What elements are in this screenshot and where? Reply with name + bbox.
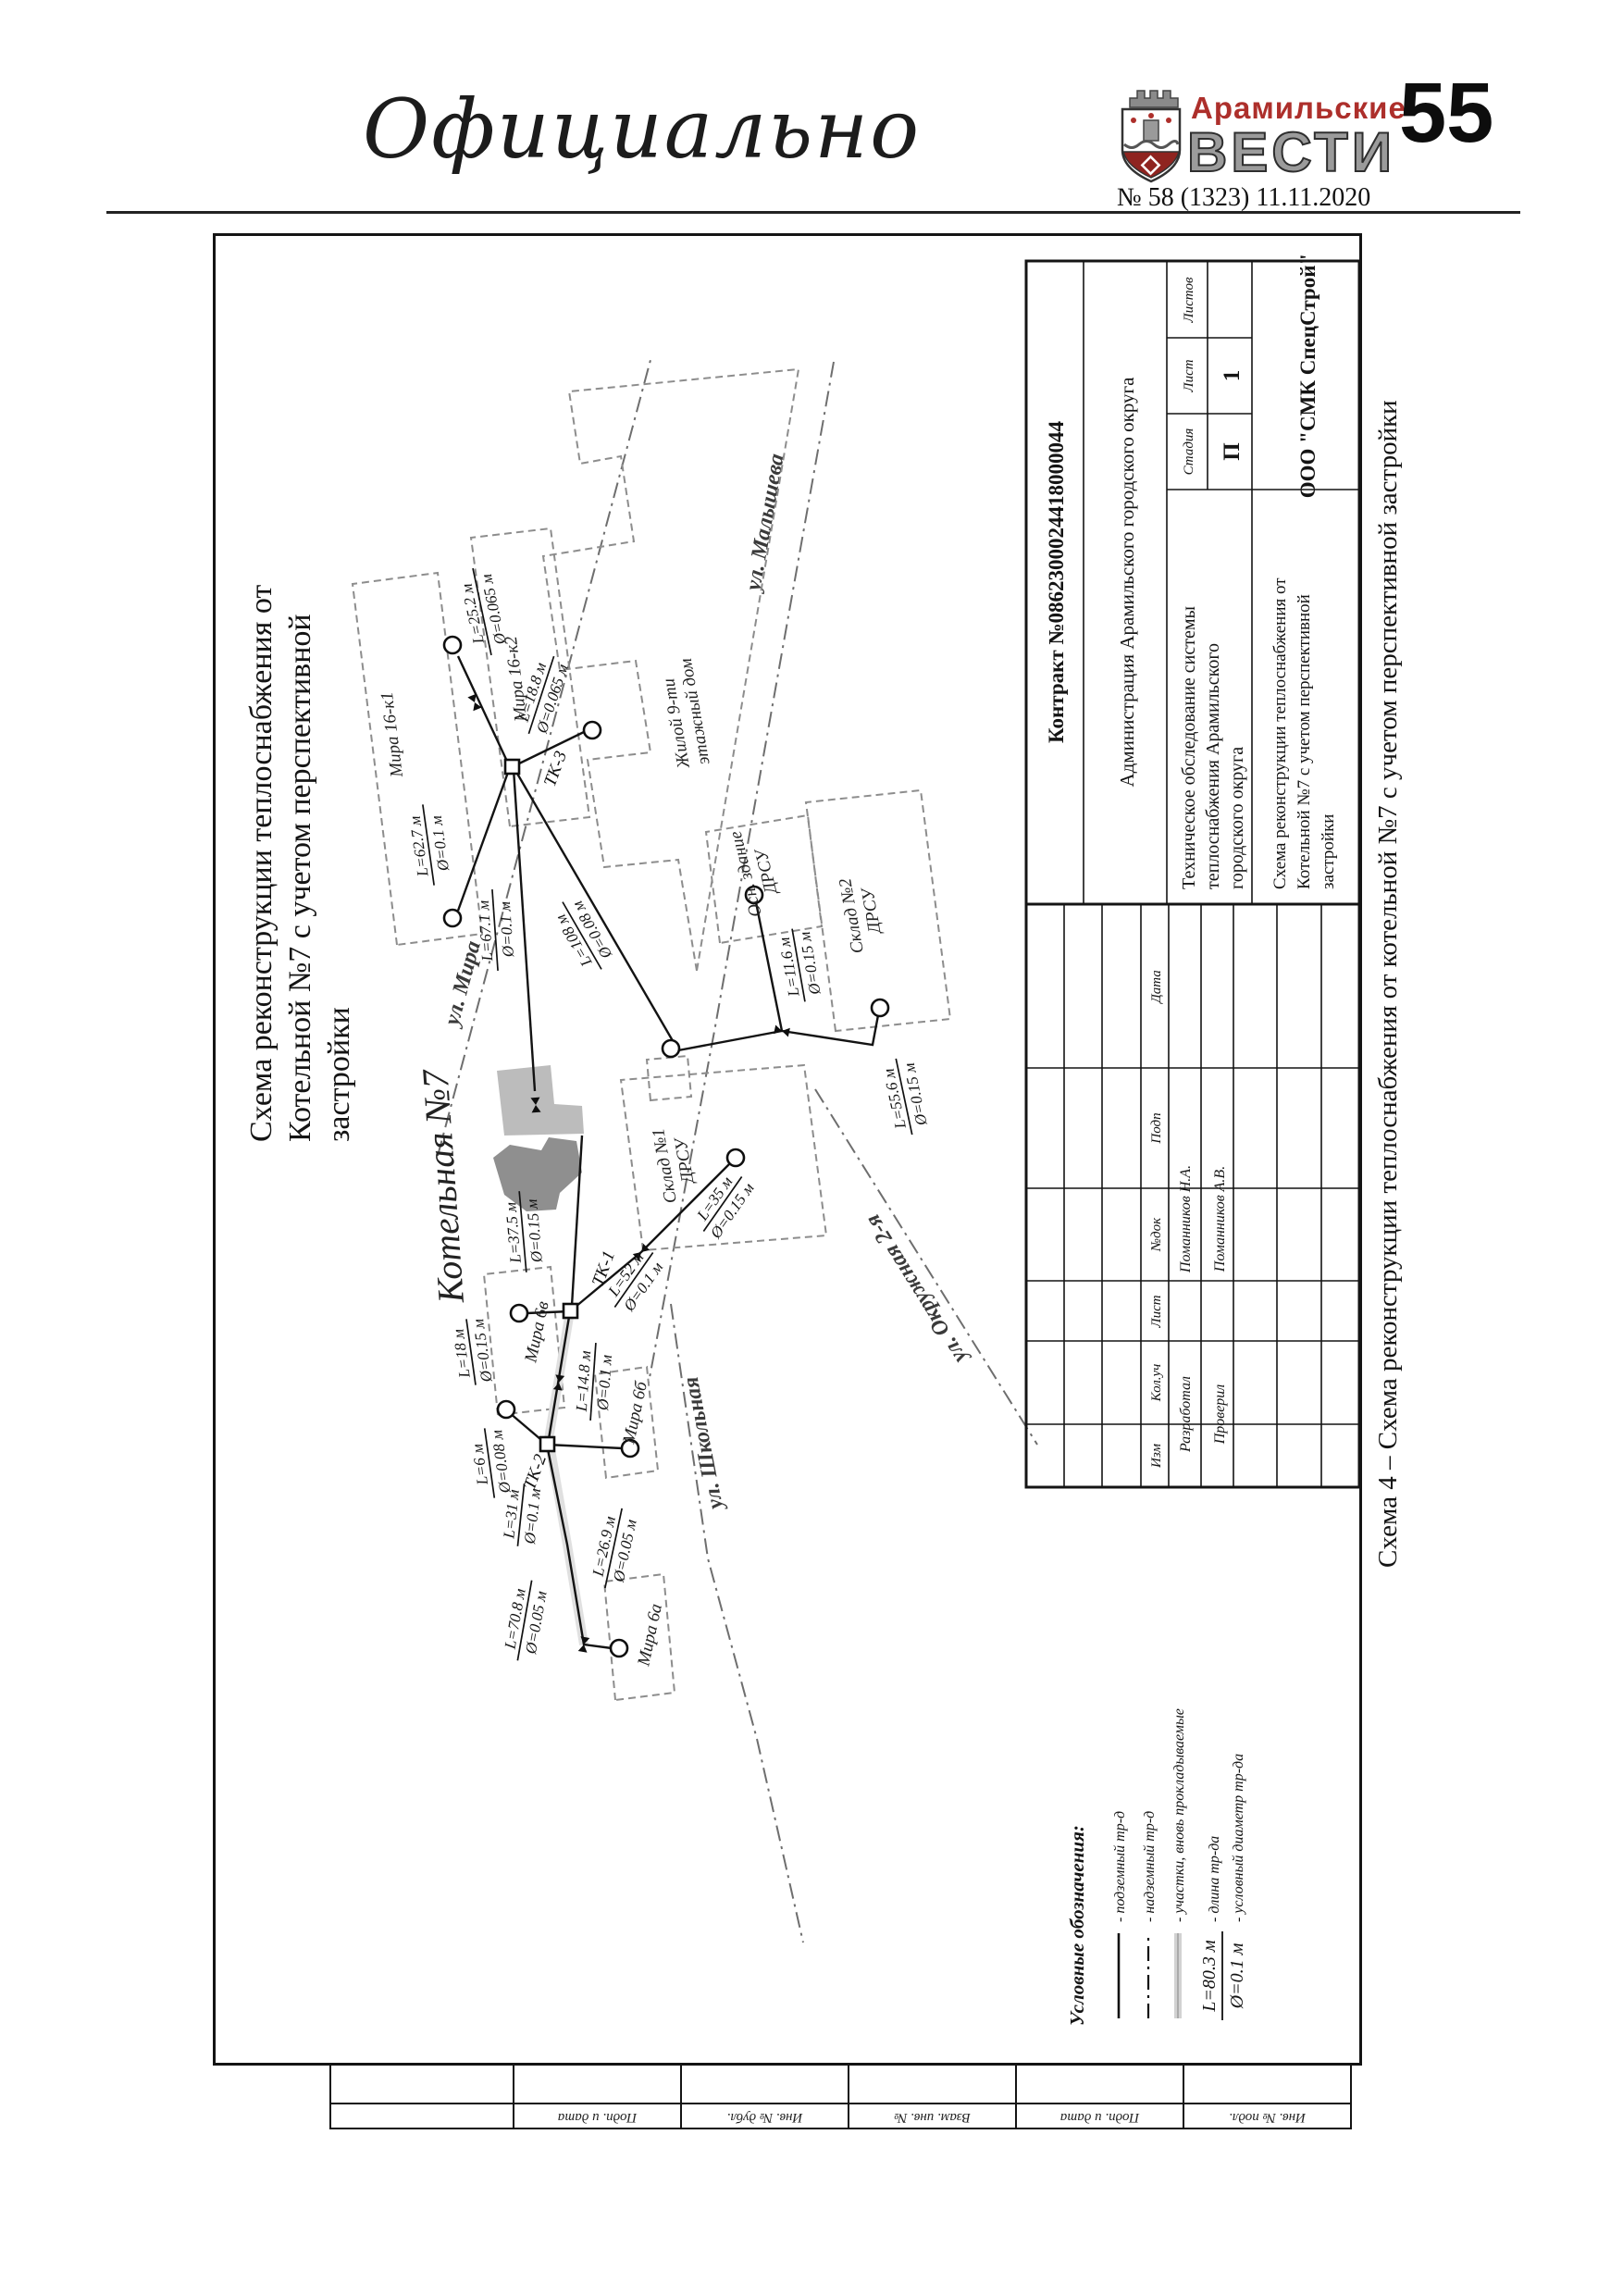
label-mira6b: Мира 6б — [619, 1379, 651, 1446]
boiler-building — [493, 1065, 584, 1211]
stamp-doc-line1: Техническое обследование системы — [1179, 606, 1199, 889]
stamp-stage-label: Стадия — [1182, 428, 1196, 476]
street-okruzhnaya-label: ул. Окружная 2-я — [861, 1210, 973, 1370]
stamp-sheet-label: Лист — [1182, 359, 1196, 392]
label-osn-drsu: Осн. здание ДРСУ — [726, 825, 787, 919]
stamp-title-line2: Котельной №7 с учетом перспективной — [1295, 594, 1314, 889]
stamp-sheet-value: 1 — [1220, 370, 1245, 382]
tk3-box — [505, 760, 519, 774]
strip-cell-empty — [329, 2063, 514, 2129]
stamp-company: ООО "СМК СпецСтрой" — [1296, 254, 1319, 498]
label-mira6a: Мира 6а — [634, 1602, 666, 1669]
label-sklad2-drsu: Склад №2 ДРСУ — [836, 873, 888, 954]
pipe-label: L=35 мØ=0.15 м — [688, 1166, 759, 1243]
masthead-name-bottom: ВЕСТИ — [1187, 120, 1395, 184]
pipe-label: L=70.8 мØ=0.05 м — [500, 1577, 552, 1664]
stamp-header-dok: №док — [1149, 1217, 1164, 1252]
title-block: Изм Кол.уч Лист №док Подп Дата Разработа… — [1026, 254, 1359, 1487]
strip-cell: Подп. и дата — [513, 2063, 682, 2129]
svg-text:Ø=0.1 м: Ø=0.1 м — [496, 900, 517, 958]
label-sklad1-drsu: Склад №1 ДРСУ — [649, 1123, 701, 1205]
newspaper-page: Официально Арамильские ВЕСТИ № 58 (1323)… — [0, 0, 1623, 2296]
pipe-tk3-mira16k1 — [458, 767, 510, 911]
pipe-label: L=55.6 мØ=0.15 м — [878, 1054, 933, 1138]
strip-cell: Подп. и дата — [1015, 2063, 1184, 2129]
drawing-title: Схема реконструкции теплоснабжения от Ко… — [244, 585, 356, 1142]
header-rule — [106, 211, 1520, 214]
stamp-header-data: Дата — [1149, 970, 1164, 1005]
stamp-header-izm: Изм — [1149, 1444, 1164, 1469]
stamp-contract: Контракт №0862300024418000044 — [1045, 420, 1068, 743]
strip-label: Инв. № подл. — [1184, 2104, 1350, 2130]
building-mira16k1 — [353, 573, 482, 945]
legend-length-sample: L=80.3 м — [1199, 1940, 1220, 2013]
pipe-label: L=62.7 мØ=0.1 м — [404, 801, 454, 887]
pipe-label: L=108 мØ=0.08 м — [547, 892, 619, 979]
stamp-header-koluch: Кол.уч — [1149, 1364, 1164, 1403]
label-zhiloy-dom: Жилой 9-ти этажный дом — [656, 657, 714, 771]
scheme-canvas: Схема реконструкции теплоснабжения от Ко… — [216, 236, 1359, 2063]
street-shkolnaya-label: ул. Школьная — [679, 1375, 729, 1514]
strip-cell: Взам. инв. № — [848, 2063, 1017, 2129]
strip-label: Инв. № дубл. — [682, 2104, 848, 2130]
stamp-role-developer: Разработал — [1178, 1376, 1194, 1453]
pipe-boiler-tk3 — [514, 769, 535, 1091]
city-crest-icon — [1115, 85, 1187, 189]
pipe-tk2-mira6b — [547, 1445, 623, 1448]
stamp-header-list: Лист — [1149, 1295, 1164, 1328]
stamp-customer: Администрация Арамильского городского ок… — [1116, 377, 1138, 788]
section-title: Официально — [363, 81, 921, 177]
stamp-name-checker: Поманников А.В. — [1212, 1166, 1228, 1272]
svg-text:Ø=0.1 м: Ø=0.1 м — [594, 1354, 615, 1411]
stamp-title-line1: Схема реконструкции теплоснабжения от — [1270, 577, 1290, 889]
stamp-role-checker: Проверил — [1212, 1384, 1228, 1446]
street-okruzhnaya-line — [815, 1089, 1037, 1445]
tk1-box — [564, 1304, 577, 1318]
legend-title: Условные обозначения: — [1066, 1825, 1088, 2026]
legend-underground-label: - подземный тр-д — [1112, 1811, 1128, 1922]
svg-text:Ø=0.08 м: Ø=0.08 м — [488, 1429, 514, 1496]
strip-label: Подп. и дата — [1017, 2104, 1183, 2130]
legend-aboveground-label: - надземный тр-д — [1142, 1811, 1158, 1922]
pipe-label: L=11.6 мØ=0.15 м — [774, 925, 824, 1005]
stamp-sheets-label: Листов — [1182, 277, 1196, 324]
building-small-house — [647, 1056, 691, 1100]
legend-new-label: - участки, вновь прокладываемые — [1171, 1708, 1187, 1922]
stamp-doc-line3: городского округа — [1227, 747, 1247, 889]
pipe-house-valve — [678, 1031, 782, 1050]
svg-text:Схема реконструкции теплоснабж: Схема реконструкции теплоснабжения от — [244, 585, 279, 1142]
pipe-valve-sklad2 — [782, 1015, 878, 1045]
boiler-label: Котельная №7 — [414, 1067, 472, 1306]
street-malysheva-label: ул. Малышева — [741, 452, 789, 595]
stamp-name-developer: Поманников Н.А. — [1178, 1165, 1194, 1273]
pipe-label: L=26.9 мØ=0.05 м — [587, 1505, 641, 1593]
pipe-label: L=14.8 мØ=0.1 м — [572, 1342, 616, 1422]
page-number: 55 — [1399, 65, 1493, 162]
strip-label: Взам. инв. № — [849, 2104, 1015, 2130]
strip-cell: Инв. № подл. — [1183, 2063, 1352, 2129]
rotated-drawing: Схема реконструкции теплоснабжения от Ко… — [216, 236, 1359, 2063]
pipe-label: L=67.1 мØ=0.1 м — [474, 888, 518, 973]
strip-label: Подп. и дата — [514, 2104, 680, 2130]
pipe-valve-osn — [756, 902, 782, 1031]
stamp-stage-value: П — [1220, 442, 1245, 460]
stamp-title-line3: застройки — [1319, 814, 1338, 889]
buildings — [353, 369, 950, 1700]
issue-number: № 58 (1323) 11.11.2020 — [1117, 183, 1370, 213]
svg-text:Котельной №7 с учетом перспект: Котельной №7 с учетом перспективной — [283, 614, 317, 1142]
drawing-frame: Схема реконструкции теплоснабжения от Ко… — [213, 233, 1362, 2066]
legend-length-label: - длина тр-да — [1207, 1836, 1222, 1922]
tk2-box — [540, 1437, 554, 1451]
figure-caption: Схема 4 – Схема реконструкции теплоснабж… — [1373, 416, 1410, 1568]
stamp-doc-line2: теплоснабжения Арамильского — [1203, 643, 1223, 889]
svg-text:застройки: застройки — [322, 1007, 356, 1142]
pipe-label: L=31 мØ=0.1 м — [500, 1482, 545, 1548]
label-mira16k1: Мира 16-к1 — [378, 690, 407, 779]
legend-diameter-label: - условный диаметр тр-да — [1231, 1754, 1246, 1922]
svg-text:Ø=0.1 м: Ø=0.1 м — [521, 1487, 544, 1545]
masthead: Арамильские ВЕСТИ № 58 (1323) 11.11.2020 — [1115, 83, 1420, 204]
street-mira-line — [438, 360, 650, 1156]
frame-side-strip: Подп. и дата Инв. № дубл. Взам. инв. № П… — [331, 2063, 1352, 2129]
legend: Условные обозначения: - подземный тр-д -… — [1066, 1708, 1247, 2026]
strip-cell: Инв. № дубл. — [680, 2063, 849, 2129]
svg-text:L=18 м: L=18 м — [449, 1328, 473, 1380]
pipe-tk3-branch — [458, 656, 510, 767]
pipe-label: L=37.5 мØ=0.15 м — [501, 1189, 547, 1273]
stamp-header-podp: Подп — [1149, 1112, 1164, 1144]
legend-diameter-sample: Ø=0.1 м — [1227, 1942, 1247, 2009]
